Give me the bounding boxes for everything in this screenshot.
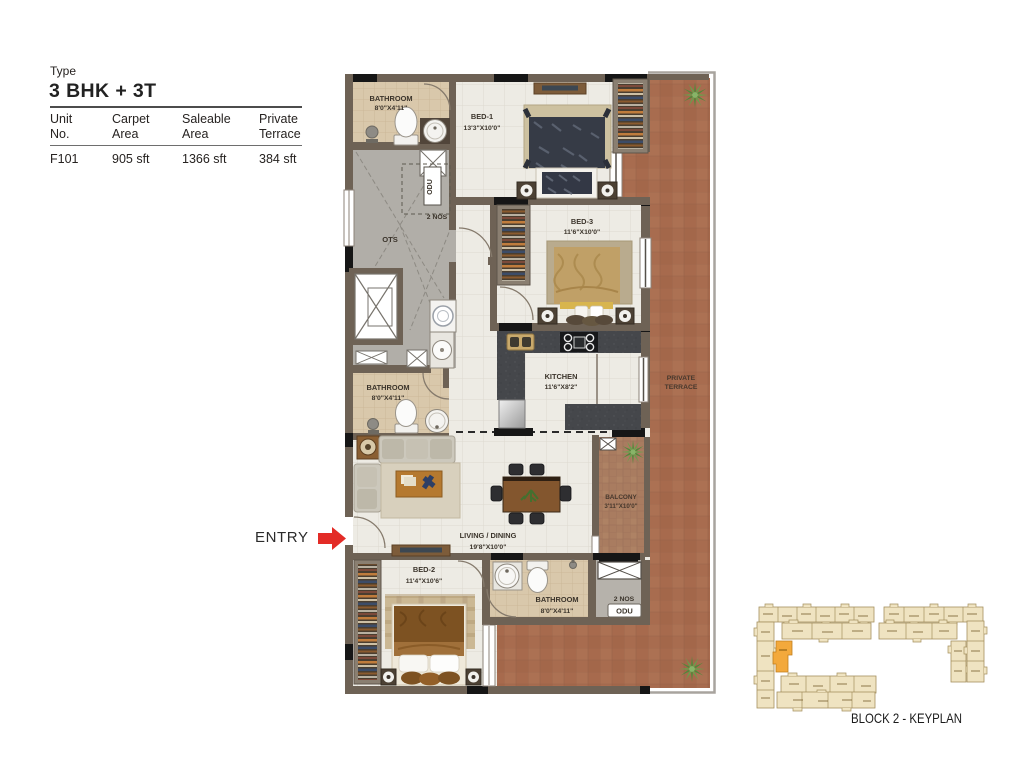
svg-text:8'0"X4'11": 8'0"X4'11" <box>372 395 405 402</box>
svg-text:BATHROOM: BATHROOM <box>536 595 579 604</box>
svg-text:BATHROOM: BATHROOM <box>370 94 413 103</box>
svg-text:KITCHEN: KITCHEN <box>545 372 578 381</box>
svg-text:BLOCK 2 - KEYPLAN: BLOCK 2 - KEYPLAN <box>851 711 962 726</box>
svg-text:ODU: ODU <box>616 607 633 616</box>
svg-text:ODU: ODU <box>427 179 434 195</box>
svg-text:BED-1: BED-1 <box>471 112 493 121</box>
svg-text:BED-3: BED-3 <box>571 217 593 226</box>
svg-text:OTS: OTS <box>382 235 398 244</box>
svg-text:8'0"X4'11": 8'0"X4'11" <box>541 608 574 615</box>
svg-text:BATHROOM: BATHROOM <box>367 383 410 392</box>
svg-text:2 NOS: 2 NOS <box>427 214 448 221</box>
svg-text:2 NOS: 2 NOS <box>614 596 635 603</box>
svg-text:11'6"X10'0": 11'6"X10'0" <box>564 229 601 236</box>
svg-text:13'3"X10'0": 13'3"X10'0" <box>464 125 501 132</box>
svg-text:11'6"X8'2": 11'6"X8'2" <box>545 384 578 391</box>
svg-text:TERRACE: TERRACE <box>665 384 698 391</box>
svg-text:BALCONY: BALCONY <box>605 494 637 501</box>
svg-text:PRIVATE: PRIVATE <box>667 375 696 382</box>
svg-text:3'11"X10'0": 3'11"X10'0" <box>604 503 637 510</box>
svg-text:11'4"X10'6": 11'4"X10'6" <box>406 578 443 585</box>
svg-text:BED-2: BED-2 <box>413 565 435 574</box>
svg-text:LIVING / DINING: LIVING / DINING <box>460 531 517 540</box>
svg-text:8'0"X4'11": 8'0"X4'11" <box>375 105 408 112</box>
svg-text:19'8"X10'0": 19'8"X10'0" <box>470 544 507 551</box>
